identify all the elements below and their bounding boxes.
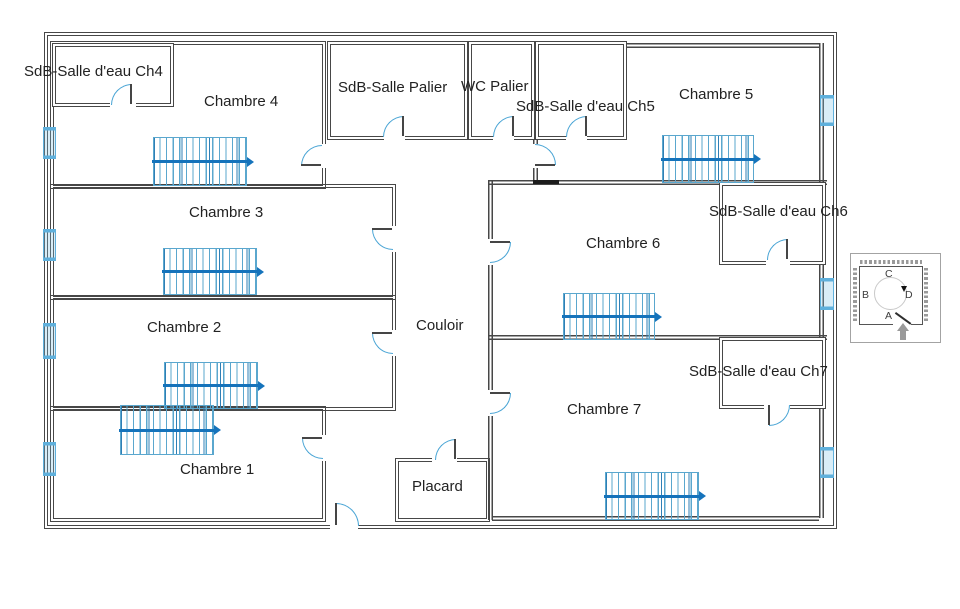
- room-label-chambre-7: Chambre 7: [567, 402, 641, 419]
- door-leaf-chambre-2: [372, 332, 392, 334]
- radiator-chambre-4: [153, 137, 247, 186]
- door-leaf-sdb-ch4: [130, 84, 132, 104]
- radiator-chambre-1: [120, 405, 214, 455]
- radiator-chambre-6: [563, 293, 655, 340]
- radiator-chambre-2: [164, 362, 258, 409]
- door-leaf-sdb-ch6: [786, 239, 788, 259]
- room-label-sdb-ch5: SdB-Salle d'eau Ch5: [516, 99, 655, 116]
- door-leaf-chambre-1: [302, 437, 322, 439]
- door-leaf-chambre-3: [372, 228, 392, 230]
- radiator-arrow-icon: [604, 495, 700, 498]
- inset-entry-arrow-stem: [900, 331, 906, 340]
- room-label-chambre-3: Chambre 3: [189, 205, 263, 222]
- room-label-sdb-ch6: SdB-Salle d'eau Ch6: [709, 204, 848, 221]
- wall-threshold: [533, 180, 559, 184]
- radiator-chambre-5: [662, 135, 754, 183]
- door-leaf-sdb-palier: [402, 116, 404, 136]
- radiator-arrow-icon: [661, 158, 755, 161]
- room-label-chambre-4: Chambre 4: [204, 94, 278, 111]
- door-leaf-sdb-ch5: [585, 116, 587, 136]
- inset-entry-arrow-icon: [897, 323, 909, 331]
- door-leaf-exit: [335, 503, 337, 525]
- room-label-wc-palier: WC Palier: [461, 79, 529, 96]
- window-left-chambre-1: [43, 442, 56, 476]
- room-label-chambre-6: Chambre 6: [586, 236, 660, 253]
- floor-plan: SdB-Salle d'eau Ch4 Chambre 4 SdB-Salle …: [0, 0, 960, 609]
- micro-text-top: [860, 260, 922, 264]
- window-left-chambre-4: [43, 127, 56, 159]
- room-label-placard: Placard: [412, 479, 463, 496]
- radiator-arrow-icon: [119, 429, 215, 432]
- micro-text-left: [853, 268, 857, 323]
- room-label-sdb-ch4: SdB-Salle d'eau Ch4: [24, 64, 163, 81]
- radiator-arrow-icon: [163, 384, 259, 387]
- orientation-inset: C B D A: [850, 253, 941, 343]
- radiator-arrow-icon: [162, 270, 258, 273]
- radiator-arrow-icon: [562, 315, 656, 318]
- room-label-sdb-ch7: SdB-Salle d'eau Ch7: [689, 364, 828, 381]
- radiator-arrow-icon: [152, 160, 248, 163]
- door-leaf-chambre-6: [490, 241, 510, 243]
- room-label-sdb-palier: SdB-Salle Palier: [338, 80, 447, 97]
- door-leaf-chambre-5: [535, 164, 555, 166]
- inset-letter-left: B: [862, 289, 869, 301]
- window-right-chambre-7: [820, 447, 834, 478]
- window-right-chambre-5: [820, 95, 834, 126]
- room-label-chambre-1: Chambre 1: [180, 462, 254, 479]
- window-right-chambre-6: [820, 278, 834, 310]
- window-left-chambre-3: [43, 229, 56, 261]
- door-leaf-chambre-4: [301, 164, 321, 166]
- door-leaf-wc-palier: [512, 116, 514, 136]
- room-label-couloir: Couloir: [416, 318, 464, 335]
- door-leaf-sdb-ch7: [768, 405, 770, 425]
- wall-chambre5-top-inner: [627, 43, 819, 48]
- wall-corridor-right: [488, 180, 493, 520]
- door-leaf-placard: [454, 439, 456, 459]
- inset-letter-bottom: A: [885, 310, 892, 322]
- micro-text-right: [924, 268, 928, 323]
- radiator-chambre-3: [163, 248, 257, 295]
- inset-circle: [874, 277, 907, 310]
- room-label-chambre-2: Chambre 2: [147, 320, 221, 337]
- inset-letter-right: D: [905, 289, 913, 301]
- window-left-chambre-2: [43, 323, 56, 359]
- room-label-chambre-5: Chambre 5: [679, 87, 753, 104]
- inset-letter-top: C: [885, 268, 893, 280]
- radiator-chambre-7: [605, 472, 699, 520]
- door-leaf-chambre-7: [490, 392, 510, 394]
